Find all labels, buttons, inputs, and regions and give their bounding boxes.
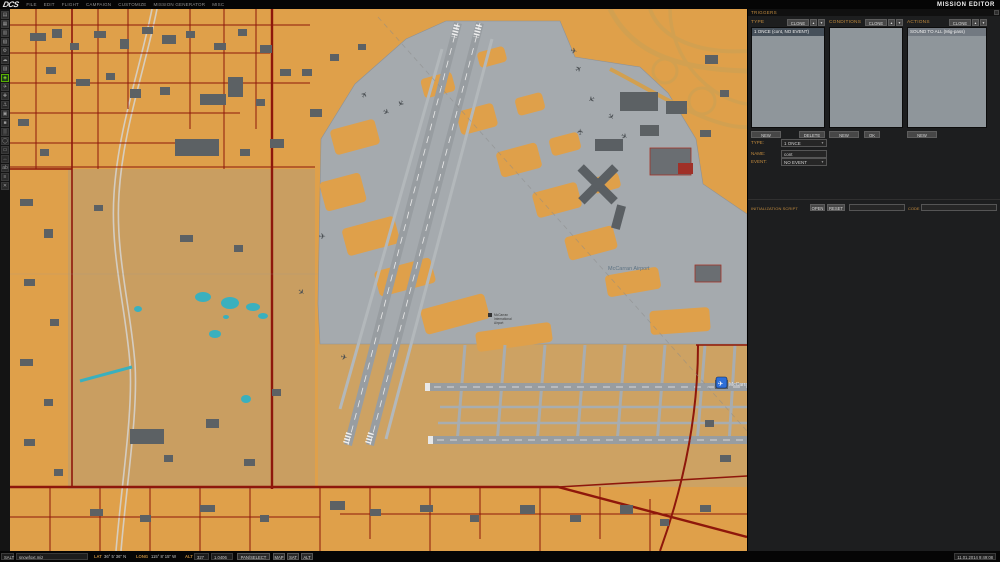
triggers-panel-title: TRIGGERS (751, 10, 777, 15)
reset-script-button[interactable]: RESET (827, 204, 845, 211)
mission-editor-window: DCS FILEEDITFLIGHTCAMPAIGNCUSTOMIZEMISSI… (0, 0, 1000, 562)
pin-icon[interactable] (994, 10, 999, 15)
action-list-item[interactable]: SOUND TO ALL (Mig-pass) (908, 28, 986, 36)
main-menu: FILEEDITFLIGHTCAMPAIGNCUSTOMIZEMISSION G… (26, 2, 224, 7)
menu-item[interactable]: EDIT (44, 2, 55, 7)
alt-view-button[interactable]: ALT (301, 553, 313, 560)
new-mission-icon[interactable]: ▤ (1, 11, 9, 19)
rules-icon[interactable]: ▨ (1, 65, 9, 73)
alt-value-field[interactable]: 327 (194, 553, 209, 560)
template-icon[interactable]: ▒ (1, 128, 9, 136)
mode-indicator: SALT (1, 553, 14, 560)
move-up-icon[interactable]: ▲ (888, 19, 895, 26)
ship-group-icon[interactable]: ⚓ (1, 101, 9, 109)
top-menu-bar: DCS FILEEDITFLIGHTCAMPAIGNCUSTOMIZEMISSI… (0, 0, 1000, 9)
airport-marker-label: McCarran Intl (729, 382, 747, 388)
new-action-button[interactable]: NEW (907, 131, 937, 138)
status-bar: SALT LAT 36° 5' 36" N LONG 115° 8' 15" W… (0, 551, 1000, 562)
map-viewport[interactable]: ✈✈ ✈✈ ✈✈ ✈✈ ✈✈ ✈✈ McCarran Airport McCar… (10, 9, 747, 551)
event-field-label: EVENT: (751, 159, 767, 164)
menu-item[interactable]: CUSTOMIZE (118, 2, 146, 7)
airport-name-label: McCarran Airport (608, 266, 650, 272)
zoom-factor-field[interactable]: 1.0406 (211, 553, 233, 560)
save-mission-icon[interactable]: ▥ (1, 29, 9, 37)
mission-options-icon[interactable]: ⚙ (1, 47, 9, 55)
map-layer-icon[interactable]: ▭ (1, 146, 9, 154)
name-field-label: NAME: (751, 151, 765, 156)
type-column-label: TYPE (751, 20, 764, 25)
dcs-logo: DCS (2, 0, 19, 9)
mission-filename-input[interactable] (16, 553, 88, 560)
chevron-down-icon: ▼ (821, 160, 824, 164)
conditions-list[interactable] (829, 27, 903, 128)
script-code-input[interactable] (921, 204, 997, 211)
helicopter-group-icon[interactable]: ✚ (1, 92, 9, 100)
type-dropdown[interactable]: 1 ONCE▼ (781, 139, 827, 147)
move-down-icon[interactable]: ▼ (896, 19, 903, 26)
lat-value: 36° 5' 36" N (104, 554, 126, 559)
triggers-panel-header: TRIGGERS (748, 9, 1000, 16)
move-up-icon[interactable]: ▲ (810, 19, 817, 26)
actions-column-label: ACTIONS (907, 20, 930, 25)
triggers-panel: TRIGGERS TYPE CLONE ▲ ▼ 1 ONCE (cont, NO… (747, 9, 1000, 551)
menu-item[interactable]: MISC (212, 2, 224, 7)
clone-type-button[interactable]: CLONE (787, 19, 809, 26)
lat-label: LAT (94, 554, 102, 559)
alt-label: ALT (185, 554, 193, 559)
menu-item[interactable]: CAMPAIGN (86, 2, 111, 7)
exit-icon[interactable]: ✕ (1, 182, 9, 190)
trigger-type-list[interactable]: 1 ONCE (cont, NO EVENT) (751, 27, 825, 128)
vehicle-group-icon[interactable]: ▣ (1, 110, 9, 118)
mission-editor-title: MISSION EDITOR (937, 2, 995, 8)
move-down-icon[interactable]: ▼ (980, 19, 987, 26)
pan-select-button[interactable]: PAN/SELECT (237, 553, 270, 560)
trigger-actions-column: ACTIONS CLONE ▲ ▼ SOUND TO ALL (Mig-pass… (907, 18, 987, 138)
actions-list[interactable]: SOUND TO ALL (Mig-pass) (907, 27, 987, 128)
svg-text:✈: ✈ (718, 381, 724, 388)
delete-trigger-button[interactable]: DELETE (799, 131, 825, 138)
move-down-icon[interactable]: ▼ (818, 19, 825, 26)
static-object-icon[interactable]: ■ (1, 119, 9, 127)
airplane-group-icon[interactable]: ✈ (1, 83, 9, 91)
triggers-icon[interactable]: ◈ (1, 74, 9, 82)
svg-text:Airport: Airport (494, 321, 504, 325)
chevron-down-icon: ▼ (821, 141, 824, 145)
trigger-list-item[interactable]: 1 ONCE (cont, NO EVENT) (752, 28, 824, 36)
weather-icon[interactable]: ☁ (1, 56, 9, 64)
initialization-script-row: INITIALIZATION SCRIPT OPEN RESET CODE (748, 199, 1000, 218)
open-script-button[interactable]: OPEN (810, 204, 825, 211)
move-up-icon[interactable]: ▲ (972, 19, 979, 26)
clone-action-button[interactable]: CLONE (949, 19, 971, 26)
new-condition-button[interactable]: NEW (829, 131, 859, 138)
trigger-conditions-column: CONDITIONS CLONE ▲ ▼ NEW OK (829, 18, 903, 138)
ok-condition-button[interactable]: OK (864, 131, 880, 138)
open-mission-icon[interactable]: ▦ (1, 20, 9, 28)
clone-condition-button[interactable]: CLONE (865, 19, 887, 26)
map-view-button[interactable]: MAP (273, 553, 285, 560)
ruler-icon[interactable]: ≡ (1, 173, 9, 181)
menu-item[interactable]: FILE (26, 2, 36, 7)
left-toolbar: ▤▦▥▧⚙☁▨◈✈✚⚓▣■▒◯▭↔ab≡✕ (0, 9, 10, 551)
trigger-name-input[interactable] (781, 150, 827, 158)
event-dropdown[interactable]: NO EVENT▼ (781, 158, 827, 166)
code-field-label: CODE (908, 206, 920, 211)
svg-text:✈: ✈ (576, 128, 585, 135)
trigger-zone-icon[interactable]: ◯ (1, 137, 9, 145)
type-field-label: TYPE: (751, 140, 764, 145)
map-canvas[interactable]: ✈✈ ✈✈ ✈✈ ✈✈ ✈✈ ✈✈ McCarran Airport McCar… (10, 9, 747, 551)
svg-text:✈: ✈ (319, 232, 326, 241)
labels-icon[interactable]: ab (1, 164, 9, 172)
conditions-column-label: CONDITIONS (829, 20, 861, 25)
sat-view-button[interactable]: SAT (287, 553, 299, 560)
script-file-input[interactable] (849, 204, 905, 211)
long-label: LONG (136, 554, 148, 559)
menu-item[interactable]: FLIGHT (62, 2, 79, 7)
menu-item[interactable]: MISSION GENERATOR (153, 2, 205, 7)
initialization-script-label: INITIALIZATION SCRIPT (751, 206, 798, 211)
distance-tool-icon[interactable]: ↔ (1, 155, 9, 163)
long-value: 115° 8' 15" W (151, 554, 176, 559)
new-trigger-button[interactable]: NEW (751, 131, 781, 138)
mission-datetime: 11.01.2014 9:49:08 (954, 553, 996, 560)
trigger-type-column: TYPE CLONE ▲ ▼ 1 ONCE (cont, NO EVENT) N… (751, 18, 825, 138)
briefing-icon[interactable]: ▧ (1, 38, 9, 46)
